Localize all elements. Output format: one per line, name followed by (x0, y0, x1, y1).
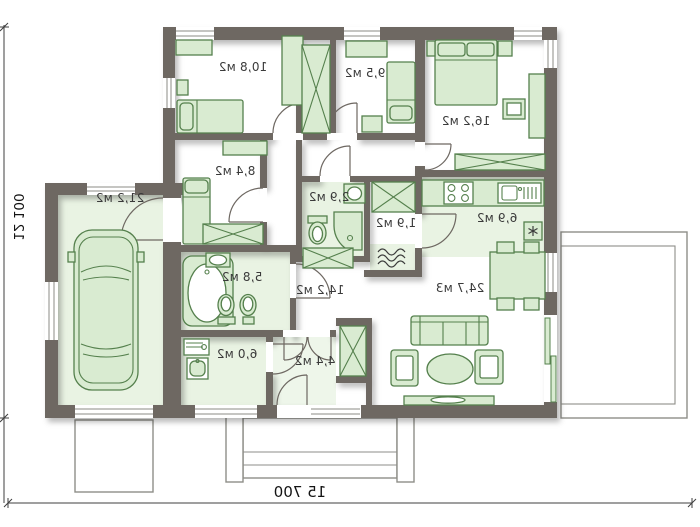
window (514, 27, 542, 40)
front-door-opening (277, 405, 361, 418)
desk (346, 41, 387, 57)
window (45, 282, 58, 340)
cabinet-shelf (223, 141, 267, 155)
terrace (561, 232, 687, 418)
wc-door-swing (320, 146, 350, 176)
washbasin (206, 253, 230, 267)
dimension-depth-label: 12 100 (10, 177, 26, 257)
room-label-master: 16,2 м2 (431, 113, 501, 129)
room-cabinet (183, 141, 267, 244)
boiler-nook-floor (370, 244, 415, 270)
bedside-table (362, 116, 382, 132)
car (68, 230, 144, 390)
room-label-wc: 2,9 м2 (294, 189, 364, 205)
room-label-garage: 21,2 м2 (85, 190, 155, 206)
room-label-entry: 4,4 м2 (280, 353, 350, 369)
dining-table (490, 242, 545, 310)
room-label-living: 24,7 м3 (425, 280, 495, 296)
room-hallway (303, 248, 353, 268)
window (544, 253, 557, 292)
room-label-storage: 1,9 м2 (361, 215, 431, 231)
nightstand (498, 41, 512, 56)
cabinet-door-swing (229, 188, 263, 222)
wardrobe (529, 74, 545, 138)
closet-hatch (455, 154, 545, 170)
dimension-width-label: 15 700 (250, 483, 350, 501)
closet-hatch (302, 45, 330, 133)
tv-stand (404, 396, 494, 405)
entry-porch (226, 412, 414, 482)
closet-hatch (303, 248, 353, 268)
side-table (503, 99, 525, 119)
window (163, 78, 175, 108)
nightstand (177, 80, 188, 95)
bidet (240, 295, 256, 325)
garage-apron (75, 420, 153, 492)
toilet (308, 216, 327, 244)
single-bed (177, 100, 243, 133)
stove (444, 182, 473, 204)
room-garage (68, 230, 144, 390)
terrace-sliding-door (544, 315, 557, 402)
toilet (218, 295, 235, 325)
window (195, 405, 257, 418)
coffee-table (427, 354, 473, 384)
sofa (411, 316, 488, 345)
room-label-kitchen: 6,9 м2 (462, 210, 532, 226)
nightstand (427, 41, 435, 56)
garage-gate (75, 405, 153, 418)
armchair (475, 350, 503, 384)
window (176, 27, 214, 40)
room-label-hallway: 14,2 м2 (285, 282, 355, 298)
window (544, 40, 557, 68)
window (344, 27, 380, 40)
room-bedroom-1 (176, 36, 330, 133)
closet-hatch (372, 182, 415, 212)
kitchen-sink (498, 183, 541, 203)
armchair (391, 350, 418, 386)
room-label-utility: 6,0 м2 (202, 346, 272, 362)
room-label-cabinet: 8,4 м2 (200, 163, 270, 179)
room-bedroom-master (427, 40, 545, 170)
room-bedroom-2 (346, 41, 415, 132)
room-label-bedroom-2: 9,5 м2 (330, 65, 400, 81)
double-bed (435, 40, 497, 105)
floor-plan-canvas: 10,8 м2 9,5 м2 16,2 м2 8,4 м2 21,2 м2 2,… (0, 0, 700, 527)
desk (176, 40, 212, 55)
master-door-swing (425, 144, 451, 170)
room-label-bathroom: 5,8 м2 (207, 269, 277, 285)
room-label-bedroom-1: 10,8 м2 (208, 59, 278, 75)
wardrobe (282, 36, 303, 105)
closet-hatch (203, 224, 263, 244)
